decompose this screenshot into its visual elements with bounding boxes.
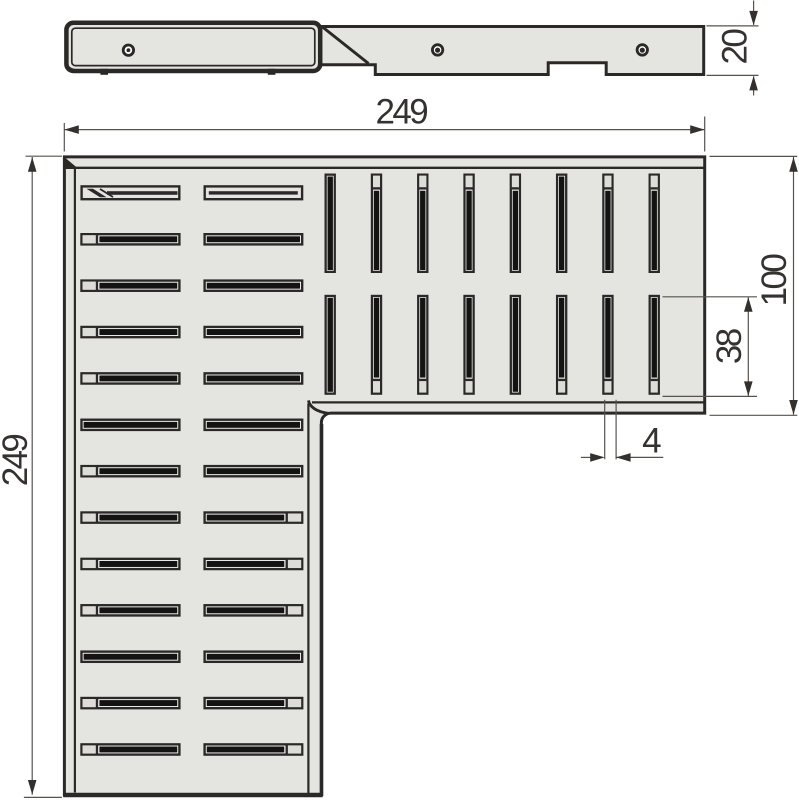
svg-text:20: 20 xyxy=(715,29,754,65)
svg-text:100: 100 xyxy=(755,254,794,307)
svg-text:249: 249 xyxy=(0,435,35,487)
svg-text:38: 38 xyxy=(710,329,749,364)
svg-text:249: 249 xyxy=(375,92,427,131)
svg-text:4: 4 xyxy=(642,422,661,461)
